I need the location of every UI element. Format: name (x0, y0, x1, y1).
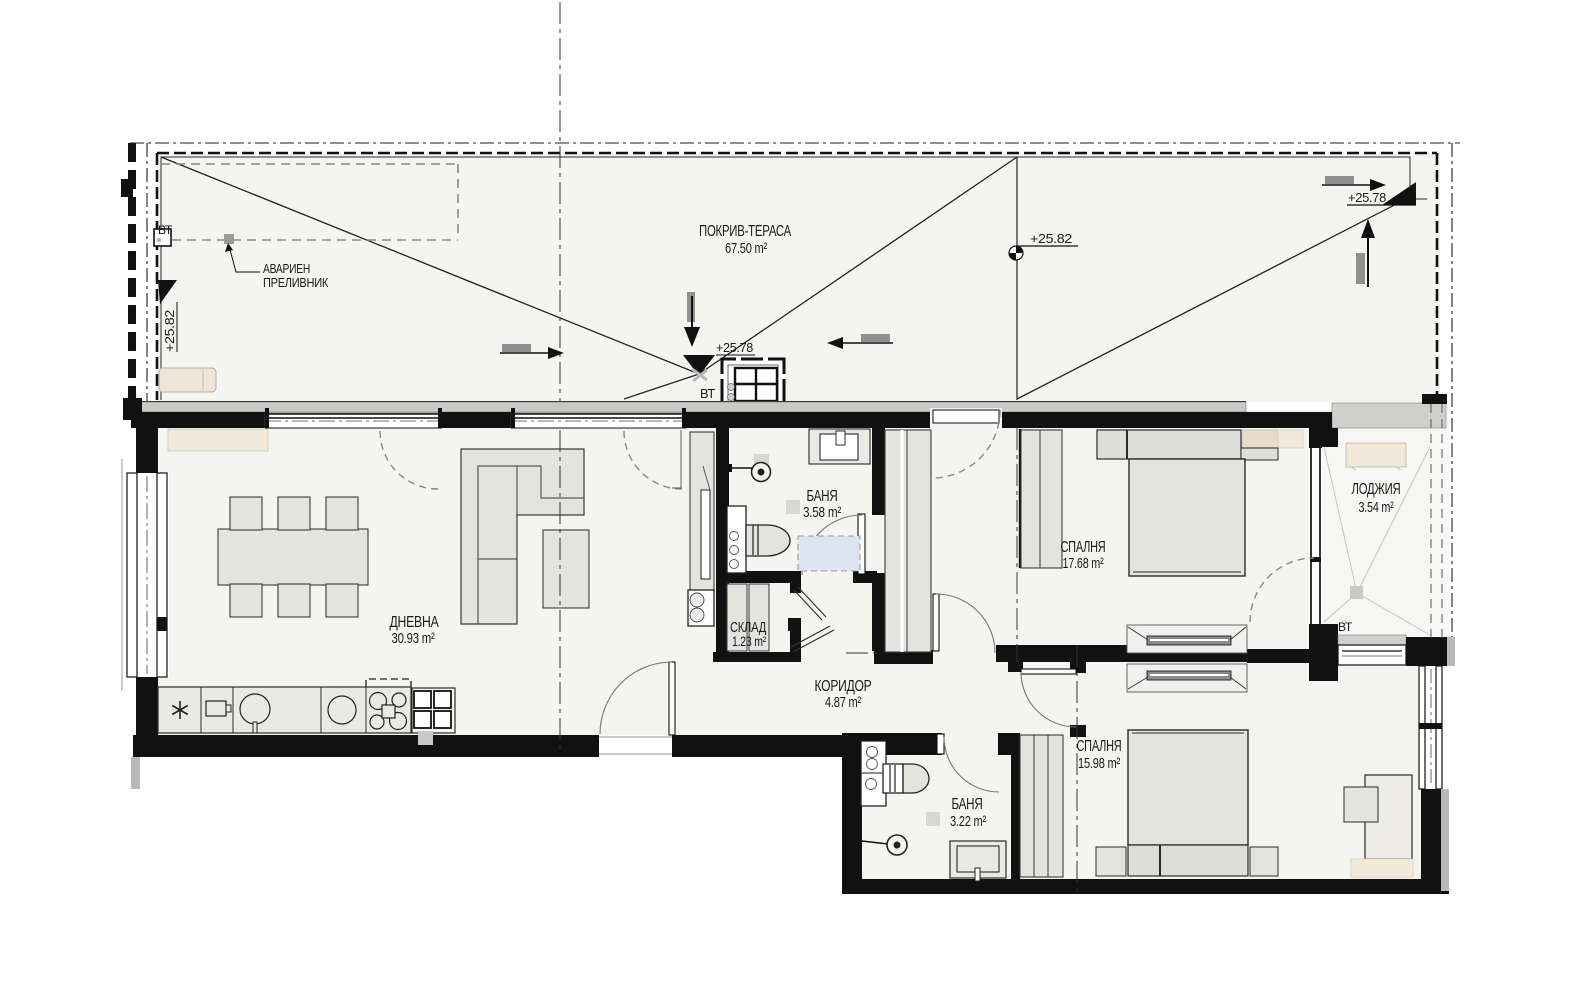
svg-text:БАНЯ: БАНЯ (807, 488, 838, 505)
svg-text:КОРИДОР: КОРИДОР (815, 678, 872, 695)
svg-text:15.98 m²: 15.98 m² (1078, 755, 1120, 772)
svg-text:67.50 m²: 67.50 m² (725, 240, 767, 257)
svg-text:+25.78: +25.78 (1348, 191, 1386, 205)
svg-text:АВАРИЕН: АВАРИЕН (263, 262, 310, 276)
svg-text:ЛОДЖИЯ: ЛОДЖИЯ (1352, 481, 1401, 498)
svg-text:БАНЯ: БАНЯ (952, 796, 983, 813)
svg-text:СПАЛНЯ: СПАЛНЯ (1077, 738, 1122, 755)
svg-text:3.54 m²: 3.54 m² (1359, 499, 1394, 516)
svg-text:ВТ: ВТ (1338, 620, 1353, 634)
svg-text:ВТ: ВТ (700, 387, 716, 401)
svg-text:+25.82: +25.82 (1030, 232, 1072, 246)
svg-text:ПРЕЛИВНИК: ПРЕЛИВНИК (263, 276, 329, 290)
svg-text:17.68 m²: 17.68 m² (1063, 555, 1104, 572)
svg-text:ПОКРИВ-ТЕРАСА: ПОКРИВ-ТЕРАСА (699, 223, 791, 240)
svg-text:+25.82: +25.82 (163, 310, 177, 352)
svg-text:4.87 m²: 4.87 m² (825, 694, 861, 711)
svg-text:30.93 m²: 30.93 m² (392, 630, 435, 647)
svg-text:+25.78: +25.78 (716, 341, 753, 355)
svg-text:ВТ: ВТ (158, 225, 172, 237)
svg-text:ДНЕВНА: ДНЕВНА (390, 614, 439, 631)
svg-text:3.22 m²: 3.22 m² (950, 813, 986, 830)
svg-text:3.58 m²: 3.58 m² (803, 504, 841, 521)
svg-text:1.23 m²: 1.23 m² (732, 633, 766, 649)
svg-text:СПАЛНЯ: СПАЛНЯ (1061, 539, 1106, 556)
